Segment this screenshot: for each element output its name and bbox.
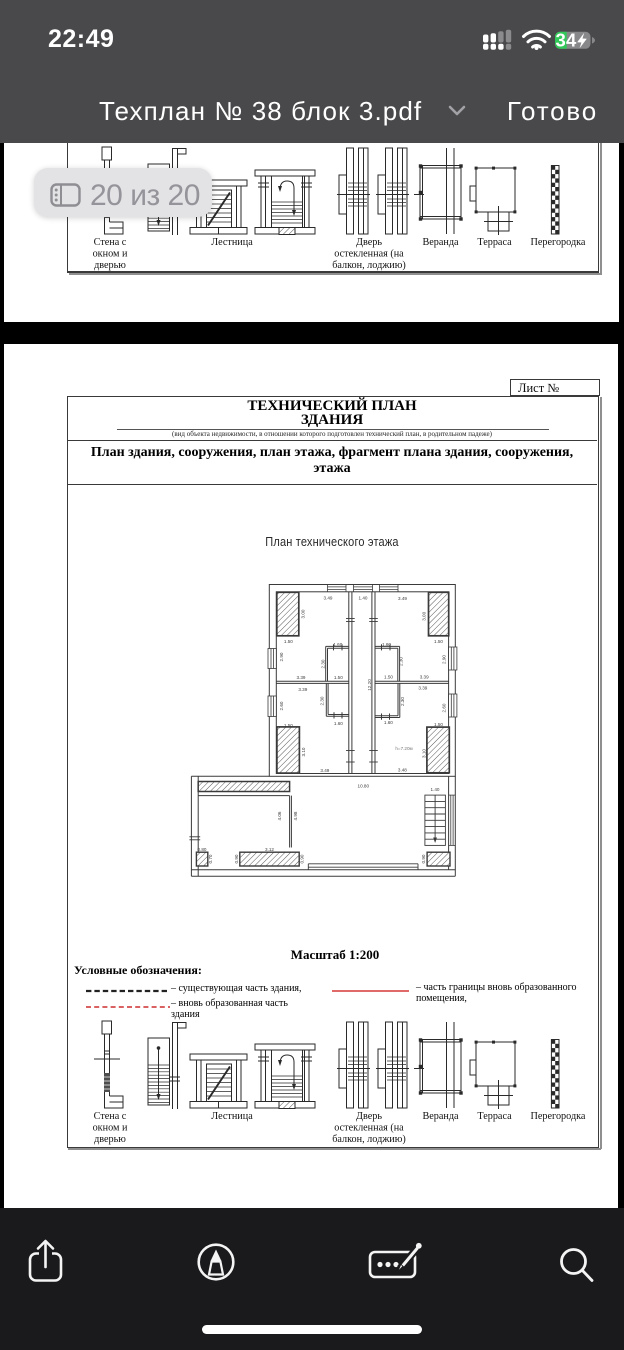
svg-text:0.70: 0.70 [208, 854, 213, 863]
svg-text:1.40: 1.40 [431, 787, 440, 792]
svg-text:4.98: 4.98 [293, 811, 298, 820]
svg-text:1.60: 1.60 [382, 642, 391, 647]
svg-text:2.30: 2.30 [320, 659, 325, 668]
svg-text:1.50: 1.50 [434, 639, 443, 644]
svg-text:0.90: 0.90 [234, 854, 239, 863]
svg-text:2.30: 2.30 [400, 697, 405, 706]
svg-text:1.50: 1.50 [334, 675, 343, 680]
svg-text:3.49: 3.49 [324, 596, 333, 601]
svg-text:3.49: 3.49 [398, 596, 407, 601]
svg-text:2.60: 2.60 [279, 701, 284, 710]
svg-text:3.00: 3.00 [421, 611, 426, 620]
svg-text:3.39: 3.39 [298, 687, 307, 692]
svg-text:1.50: 1.50 [434, 722, 443, 727]
svg-text:1.60: 1.60 [334, 721, 343, 726]
svg-text:0.90: 0.90 [299, 854, 304, 863]
svg-text:3.00: 3.00 [301, 609, 306, 618]
svg-text:h=7.20м: h=7.20м [395, 746, 412, 751]
svg-text:0.80: 0.80 [198, 847, 207, 852]
svg-text:10.80: 10.80 [358, 783, 370, 788]
svg-text:1.40: 1.40 [359, 596, 368, 601]
svg-text:2.90: 2.90 [442, 655, 447, 664]
svg-text:3.12: 3.12 [265, 847, 274, 852]
svg-text:1.50: 1.50 [384, 675, 393, 680]
svg-text:3.48: 3.48 [398, 768, 407, 773]
svg-text:1.50: 1.50 [284, 639, 293, 644]
svg-text:2.30: 2.30 [320, 696, 325, 705]
svg-text:3.39: 3.39 [418, 686, 427, 691]
svg-text:3.39: 3.39 [297, 675, 306, 680]
svg-text:2.90: 2.90 [279, 652, 284, 661]
svg-text:2.60: 2.60 [442, 703, 447, 712]
svg-text:3.49: 3.49 [320, 768, 329, 773]
svg-text:1.60: 1.60 [384, 720, 393, 725]
svg-text:4.06: 4.06 [277, 811, 282, 820]
svg-text:0.90: 0.90 [421, 854, 426, 863]
svg-text:2.30: 2.30 [399, 657, 404, 666]
svg-text:3.10: 3.10 [422, 749, 427, 758]
svg-text:34: 34 [556, 30, 577, 51]
svg-text:3.39: 3.39 [420, 675, 429, 680]
svg-text:1.50: 1.50 [284, 723, 293, 728]
svg-text:12.20: 12.20 [367, 679, 372, 691]
svg-text:1.60: 1.60 [333, 642, 342, 647]
svg-text:3.10: 3.10 [301, 747, 306, 756]
